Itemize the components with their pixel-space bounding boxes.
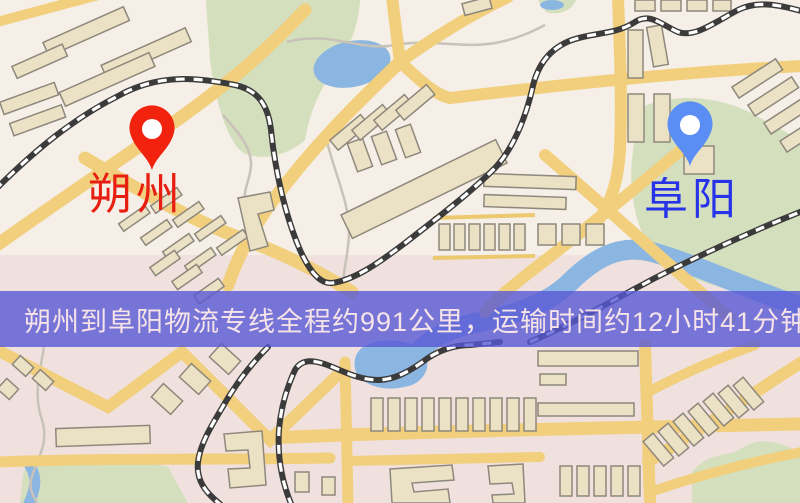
destination-pin-icon xyxy=(662,98,718,168)
origin-pin-icon xyxy=(124,102,180,172)
route-info-text: 朔州到阜阳物流专线全程约991公里，运输时间约12小时41分钟. xyxy=(0,300,800,339)
destination-city-label: 阜阳 xyxy=(644,178,740,222)
pondlet xyxy=(540,0,564,10)
map-image xyxy=(0,0,800,503)
logistics-route-map: 朔州 阜阳 朔州到阜阳物流专线全程约991公里，运输时间约12小时41分钟. xyxy=(0,0,800,503)
park-area xyxy=(20,460,188,503)
origin-city-label: 朔州 xyxy=(88,173,184,217)
route-info-banner: 朔州到阜阳物流专线全程约991公里，运输时间约12小时41分钟. xyxy=(0,291,800,347)
